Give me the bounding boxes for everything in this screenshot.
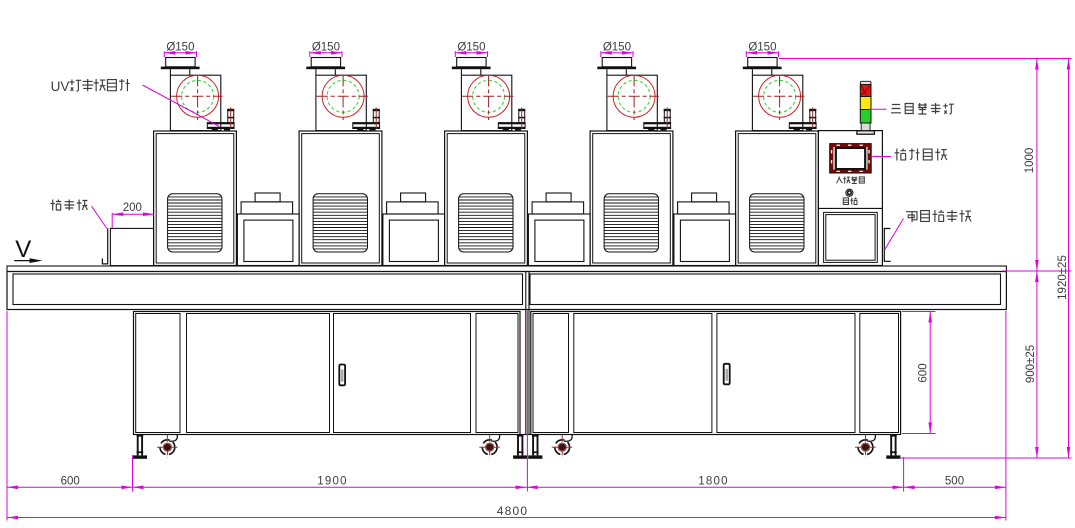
svg-text:UV: UV (51, 79, 70, 94)
svg-text:Ø150: Ø150 (166, 41, 194, 53)
svg-text:Ø150: Ø150 (457, 41, 485, 53)
svg-text:4800: 4800 (497, 504, 529, 518)
svg-text:600: 600 (61, 475, 80, 487)
svg-text:200: 200 (123, 202, 142, 214)
svg-text:Ø150: Ø150 (312, 41, 340, 53)
svg-text:1000: 1000 (1024, 148, 1036, 174)
svg-text:Ø150: Ø150 (603, 41, 631, 53)
svg-text:1900: 1900 (317, 475, 347, 487)
svg-text:Ø150: Ø150 (748, 41, 776, 53)
svg-text:500: 500 (945, 475, 964, 487)
svg-text:600: 600 (918, 363, 930, 382)
svg-text:V: V (15, 236, 31, 263)
svg-text:1920±25: 1920±25 (1057, 255, 1069, 300)
svg-text:900±25: 900±25 (1025, 345, 1037, 383)
svg-text:1800: 1800 (698, 475, 728, 487)
